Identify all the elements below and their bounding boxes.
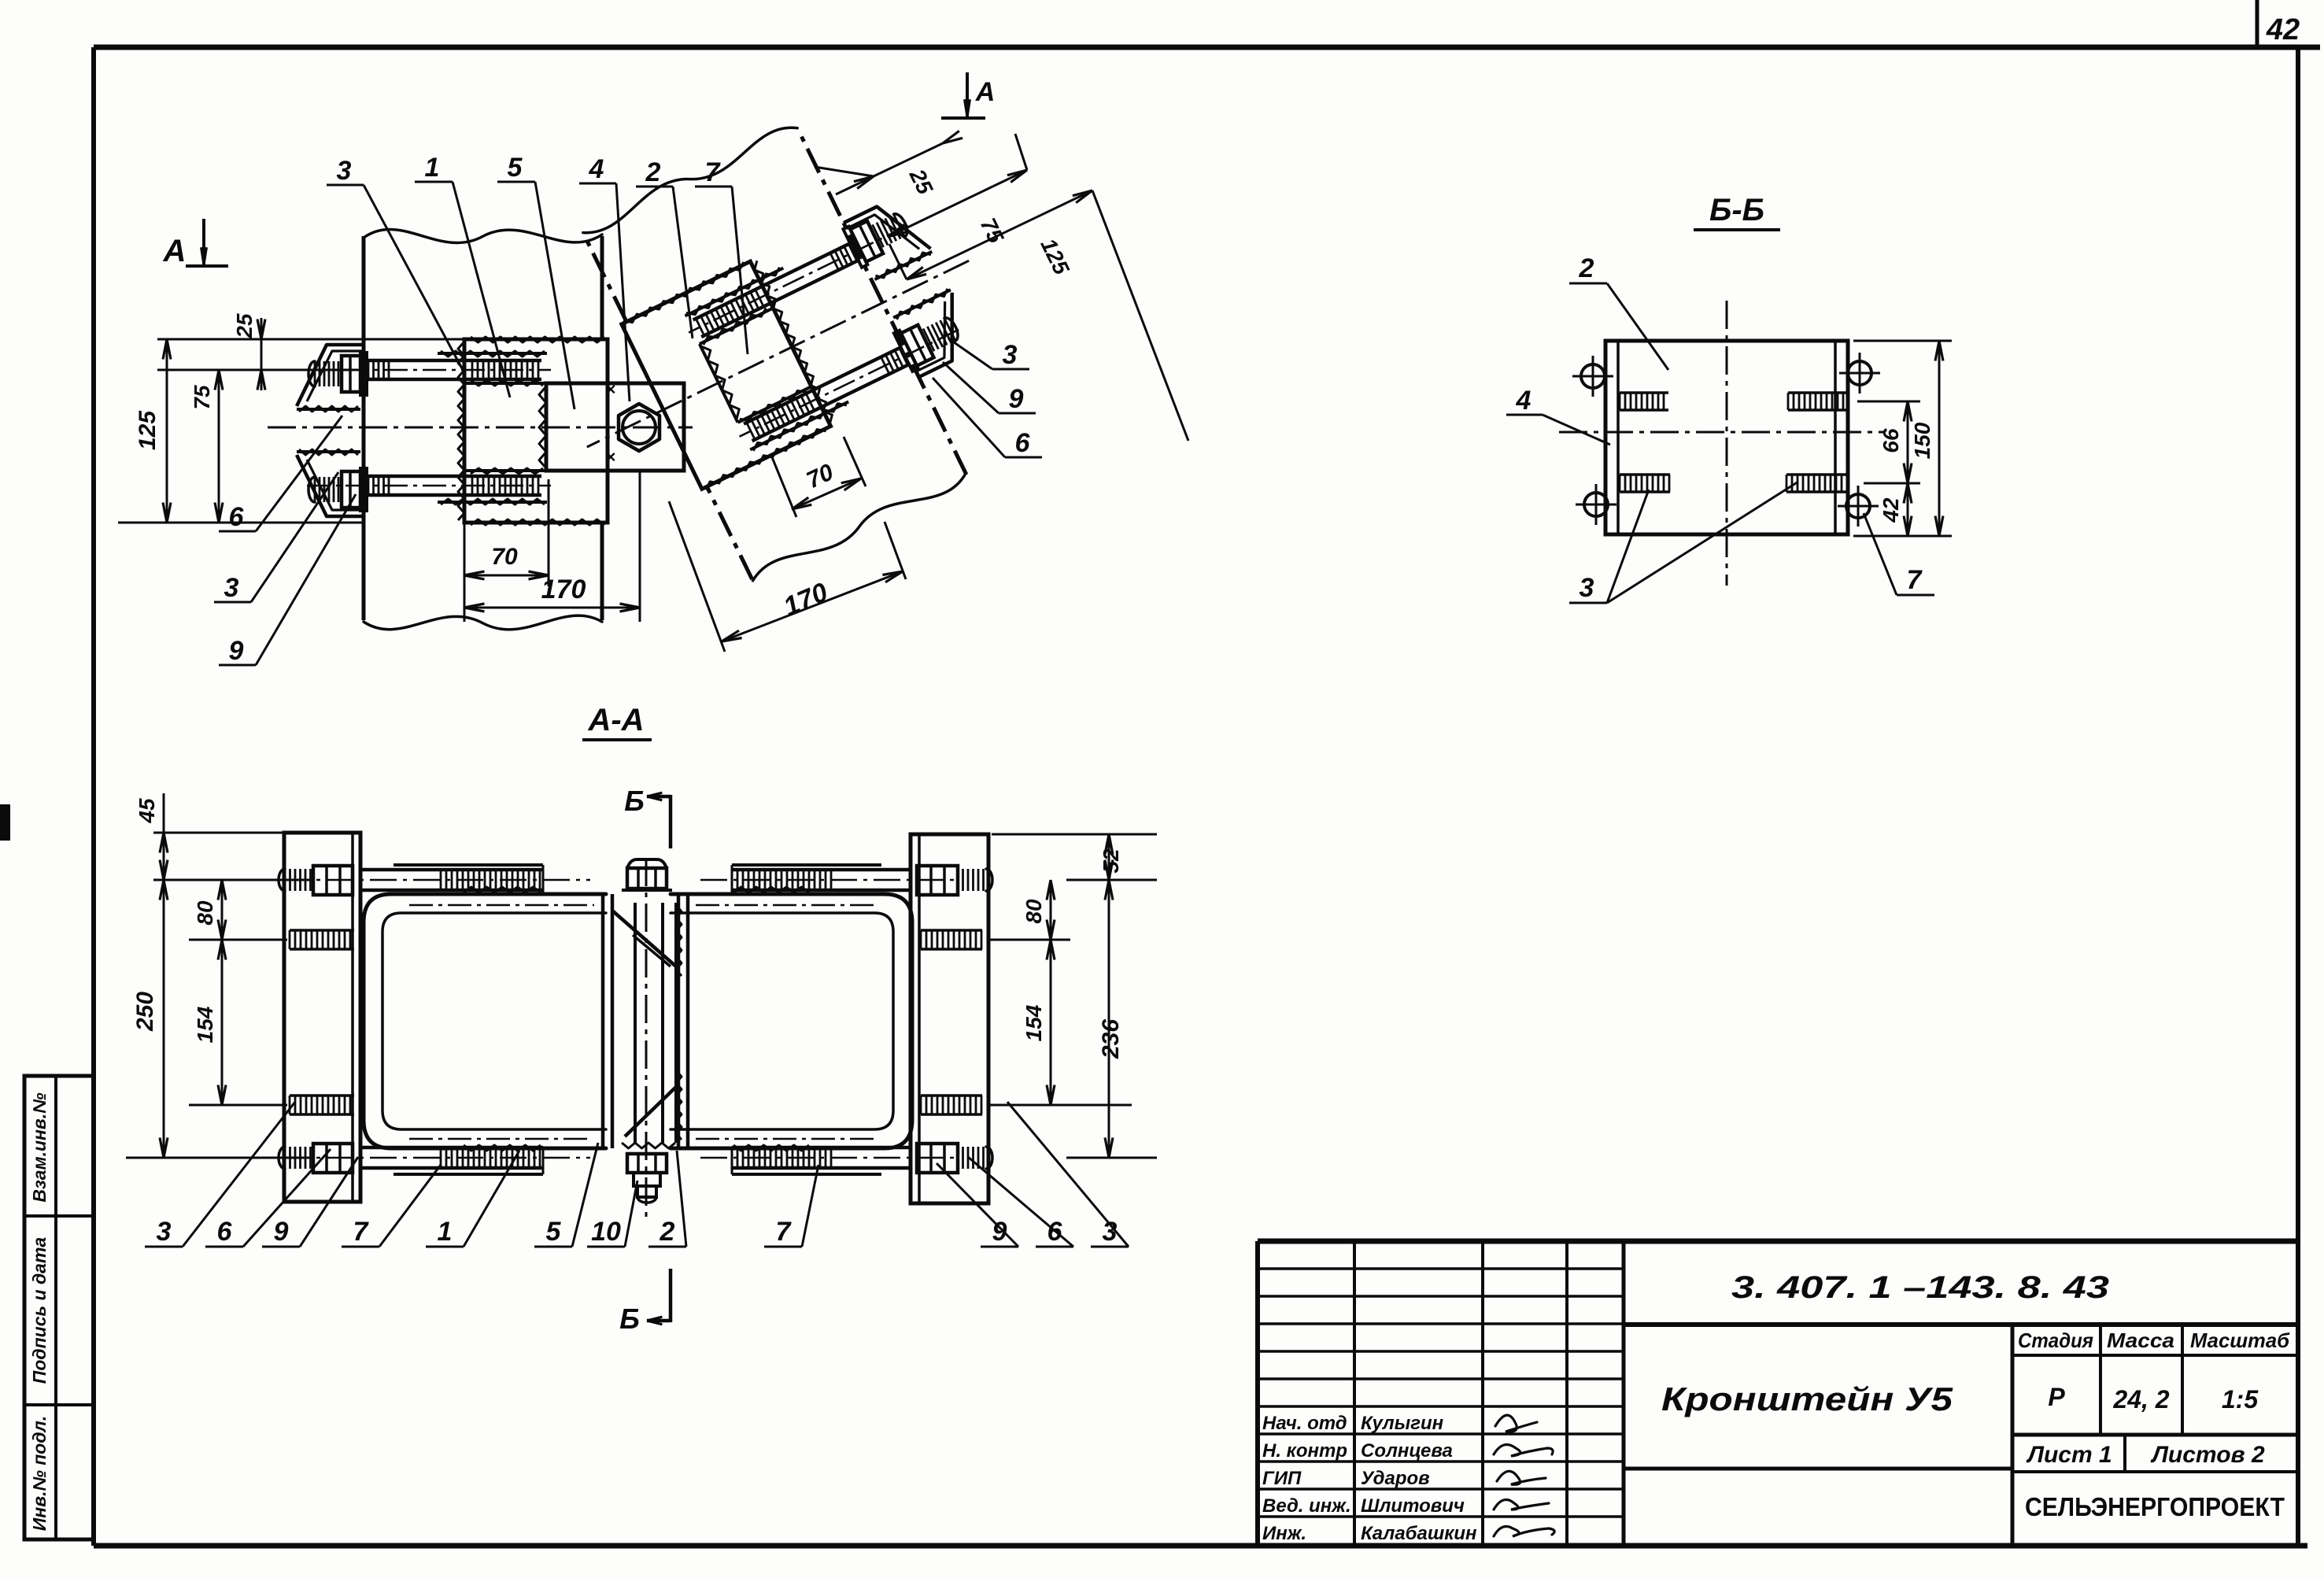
svg-text:170: 170 bbox=[541, 575, 586, 604]
svg-text:9: 9 bbox=[1009, 384, 1024, 414]
svg-text:5: 5 bbox=[508, 153, 523, 183]
svg-text:42: 42 bbox=[1879, 497, 1903, 523]
svg-text:Б-Б: Б-Б bbox=[1709, 193, 1764, 227]
svg-text:24, 2: 24, 2 bbox=[2112, 1385, 2169, 1414]
svg-text:75: 75 bbox=[190, 385, 214, 410]
svg-text:2: 2 bbox=[660, 1217, 675, 1247]
svg-text:150: 150 bbox=[1910, 422, 1934, 459]
svg-text:Лист 1: Лист 1 bbox=[2026, 1442, 2112, 1468]
svg-text:А: А bbox=[975, 77, 996, 107]
svg-text:Инж.: Инж. bbox=[1262, 1523, 1306, 1544]
svg-text:3: 3 bbox=[157, 1217, 172, 1247]
svg-text:125: 125 bbox=[135, 410, 161, 450]
svg-text:7: 7 bbox=[353, 1217, 370, 1247]
svg-text:4: 4 bbox=[1516, 386, 1531, 416]
svg-text:3. 407. 1 –143. 8. 43: 3. 407. 1 –143. 8. 43 bbox=[1731, 1270, 2109, 1305]
svg-text:ГИП: ГИП bbox=[1262, 1468, 1302, 1489]
svg-text:52: 52 bbox=[1099, 848, 1123, 874]
svg-text:Калабашкин: Калабашкин bbox=[1361, 1523, 1477, 1544]
svg-text:154: 154 bbox=[1022, 1004, 1046, 1041]
svg-text:7: 7 bbox=[776, 1217, 793, 1247]
svg-text:Подпись и дата: Подпись и дата bbox=[29, 1237, 50, 1384]
svg-text:Масштаб: Масштаб bbox=[2190, 1329, 2290, 1352]
svg-text:Инв.№ подл.: Инв.№ подл. bbox=[29, 1416, 50, 1531]
svg-text:2: 2 bbox=[1579, 253, 1594, 283]
svg-text:6: 6 bbox=[217, 1217, 233, 1247]
svg-text:Р: Р bbox=[2048, 1383, 2065, 1411]
svg-text:236: 236 bbox=[1098, 1019, 1124, 1059]
svg-text:25: 25 bbox=[232, 313, 257, 339]
svg-text:80: 80 bbox=[193, 900, 217, 926]
svg-text:70: 70 bbox=[491, 544, 518, 570]
svg-text:1: 1 bbox=[425, 153, 440, 183]
svg-text:Кулыгин: Кулыгин bbox=[1361, 1413, 1444, 1434]
svg-text:2: 2 bbox=[645, 157, 661, 187]
svg-text:3: 3 bbox=[1003, 340, 1018, 370]
svg-text:Шлитович: Шлитович bbox=[1361, 1495, 1465, 1517]
svg-text:4: 4 bbox=[589, 154, 604, 184]
svg-text:Б: Б bbox=[619, 1303, 640, 1335]
svg-text:Кронштейн У5: Кронштейн У5 bbox=[1661, 1380, 1953, 1417]
svg-text:Б: Б bbox=[624, 785, 645, 817]
svg-text:6: 6 bbox=[1015, 428, 1031, 458]
svg-text:Вед. инж.: Вед. инж. bbox=[1262, 1495, 1351, 1517]
svg-text:3: 3 bbox=[224, 573, 239, 603]
svg-text:Листов 2: Листов 2 bbox=[2150, 1442, 2265, 1468]
svg-text:Н. контр: Н. контр bbox=[1262, 1440, 1347, 1462]
svg-text:Солнцева: Солнцева bbox=[1361, 1440, 1453, 1462]
svg-text:1: 1 bbox=[438, 1217, 453, 1247]
svg-text:А: А bbox=[163, 234, 187, 268]
svg-text:×: × bbox=[606, 379, 616, 399]
svg-text:250: 250 bbox=[132, 992, 158, 1032]
svg-text:5: 5 bbox=[546, 1217, 562, 1247]
svg-text:45: 45 bbox=[135, 798, 159, 824]
svg-text:1:5: 1:5 bbox=[2222, 1385, 2259, 1414]
svg-text:Масса: Масса bbox=[2107, 1329, 2174, 1352]
svg-text:9: 9 bbox=[274, 1217, 289, 1247]
svg-text:3: 3 bbox=[337, 156, 352, 186]
svg-text:66: 66 bbox=[1879, 428, 1903, 453]
svg-text:7: 7 bbox=[705, 157, 722, 187]
svg-text:Ударов: Ударов bbox=[1361, 1468, 1430, 1489]
svg-text:×: × bbox=[606, 447, 616, 467]
svg-text:7: 7 bbox=[1907, 565, 1923, 595]
svg-text:9: 9 bbox=[229, 636, 244, 666]
svg-text:42: 42 bbox=[2266, 13, 2300, 46]
svg-text:154: 154 bbox=[193, 1006, 217, 1043]
svg-text:А-А: А-А bbox=[587, 703, 644, 737]
svg-text:6: 6 bbox=[229, 502, 245, 532]
svg-text:10: 10 bbox=[591, 1217, 621, 1247]
svg-text:80: 80 bbox=[1022, 899, 1046, 924]
svg-text:Нач. отд: Нач. отд bbox=[1262, 1413, 1347, 1434]
svg-text:3: 3 bbox=[1580, 573, 1594, 603]
svg-text:СЕЛЬЭНЕРГОПРОЕКТ: СЕЛЬЭНЕРГОПРОЕКТ bbox=[2025, 1492, 2285, 1521]
svg-text:Стадия: Стадия bbox=[2018, 1329, 2093, 1352]
svg-text:Взам.инв.№: Взам.инв.№ bbox=[29, 1092, 50, 1202]
